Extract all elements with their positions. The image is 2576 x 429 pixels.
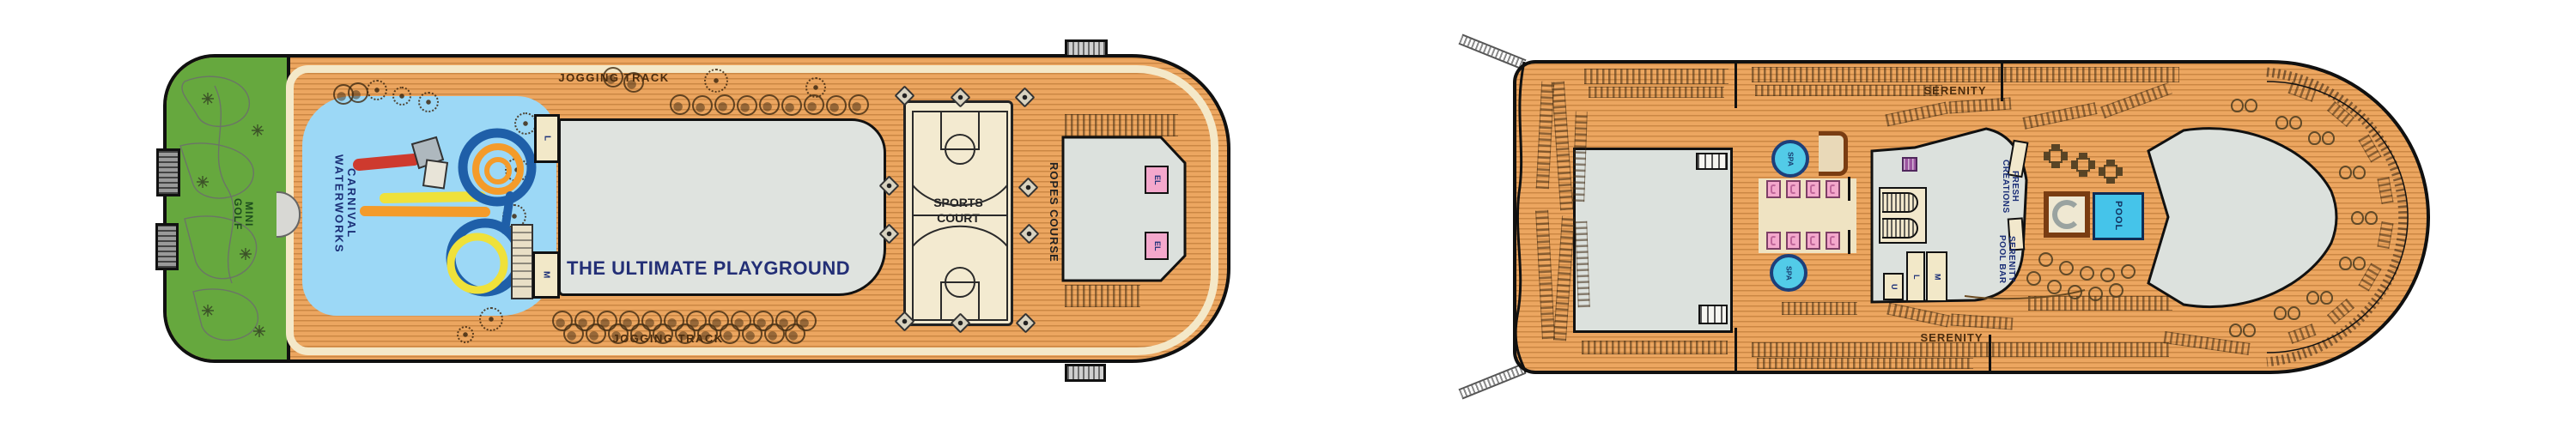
whirlpool-square bbox=[2044, 191, 2090, 238]
windbreak-1 bbox=[1735, 63, 1737, 108]
clamshell-pair-icon bbox=[2308, 131, 2336, 147]
bow-structure-bottom bbox=[155, 223, 179, 270]
round-table-icon bbox=[2080, 266, 2094, 281]
bar-counter bbox=[1819, 131, 1848, 176]
round-table-icon bbox=[2038, 252, 2053, 267]
mini-golf-label: MINIGOLF bbox=[220, 182, 254, 247]
round-table-icon bbox=[2047, 280, 2062, 294]
clamshell-pair-icon bbox=[2339, 166, 2366, 181]
vent-grille-bottom bbox=[1698, 305, 1728, 324]
cruise-deck-plans: SPORTS COURT L M EL EL JOGGING TRACK JOG… bbox=[0, 0, 2576, 429]
elevator-badge-2: EL bbox=[1145, 232, 1169, 260]
wall-stub-1 bbox=[1848, 177, 1850, 201]
clamshell-pair-icon bbox=[2229, 323, 2257, 339]
playground-title: THE ULTIMATE PLAYGROUND bbox=[567, 257, 850, 280]
waterworks-label: CARNIVALWATERWORKS bbox=[318, 116, 357, 292]
spa-lounger bbox=[1766, 180, 1781, 198]
stair-marker-upper-label: L bbox=[543, 136, 552, 142]
room-m: M bbox=[1926, 251, 1947, 302]
room-l: L bbox=[1906, 251, 1925, 302]
spa-lounger bbox=[1806, 232, 1820, 250]
vent-grille-top bbox=[1696, 153, 1728, 170]
stair-railing-top bbox=[1882, 192, 1918, 213]
round-table-icon bbox=[2109, 283, 2123, 298]
table-chairs-icon bbox=[2076, 158, 2090, 172]
funnel-structure bbox=[2148, 129, 2336, 307]
serenity-label-top: SERENITY bbox=[1917, 84, 1994, 97]
stair-marker-lower-label: M bbox=[542, 271, 551, 279]
serenity-label-bottom: SERENITY bbox=[1913, 331, 1990, 344]
spa-lounger bbox=[1786, 180, 1801, 198]
spa-forward-label: SPA bbox=[1786, 152, 1794, 166]
deck-break-line bbox=[1516, 62, 1526, 372]
elevator-badge-2-label: EL bbox=[1152, 241, 1161, 251]
table-chairs-icon bbox=[2049, 149, 2063, 163]
clamshell-pair-icon bbox=[2275, 116, 2303, 131]
water-slides-icon bbox=[359, 133, 532, 299]
windbreak-3 bbox=[2001, 63, 2003, 101]
table-chairs-icon bbox=[2104, 165, 2117, 178]
round-table-icon bbox=[2100, 268, 2115, 282]
windbreak-2 bbox=[1735, 328, 1737, 372]
spa-aft-label: SPA bbox=[1784, 266, 1792, 281]
spa-lounger bbox=[1826, 180, 1840, 198]
clamshell-pair-icon bbox=[2339, 257, 2366, 272]
round-table-icon bbox=[2026, 271, 2041, 286]
pool: POOL bbox=[2093, 192, 2144, 240]
room-m-label: M bbox=[1933, 274, 1941, 281]
spa-lounger bbox=[1826, 232, 1840, 250]
elevator-badge-1-label: EL bbox=[1152, 175, 1161, 185]
jogging-track-label-bottom: JOGGING TRACK bbox=[608, 332, 728, 345]
room-u-label: U bbox=[1889, 284, 1898, 290]
pool-label: POOL bbox=[2113, 201, 2123, 231]
spa-whirlpool-aft: SPA bbox=[1770, 254, 1807, 292]
room-l-label: L bbox=[1911, 275, 1920, 280]
deck-vector-art bbox=[0, 0, 2576, 429]
stern-platform-top bbox=[1065, 39, 1108, 57]
bow-structure-top bbox=[156, 148, 180, 196]
clamshell-pair-icon bbox=[2351, 211, 2379, 227]
round-table-icon bbox=[2088, 287, 2103, 301]
spa-lounger bbox=[1786, 232, 1801, 250]
round-table-icon bbox=[2121, 264, 2136, 279]
stair-railing-bottom bbox=[1882, 218, 1918, 239]
spa-lounger bbox=[1806, 180, 1820, 198]
towel-station bbox=[1902, 157, 1917, 172]
stair-marker-lower: M bbox=[532, 251, 560, 299]
clamshell-pair-icon bbox=[2274, 306, 2301, 322]
spa-whirlpool-forward: SPA bbox=[1771, 140, 1809, 178]
room-u: U bbox=[1883, 273, 1904, 300]
stair-marker-upper: L bbox=[534, 114, 560, 163]
round-table-icon bbox=[2059, 261, 2074, 275]
clamshell-pair-icon bbox=[2231, 99, 2258, 114]
wall-stub-2 bbox=[1848, 230, 1850, 254]
ropes-course-label: ROPES COURSE bbox=[1036, 144, 1060, 280]
elevator-badge-1: EL bbox=[1145, 166, 1169, 194]
clamshell-pair-icon bbox=[2306, 291, 2334, 306]
jogging-track-label-top: JOGGING TRACK bbox=[554, 71, 674, 84]
spa-lounger bbox=[1766, 232, 1781, 250]
round-table-icon bbox=[2068, 285, 2082, 299]
stern-platform-bottom bbox=[1065, 364, 1106, 382]
serenity-pool-bar-label: SERENITYPOOL BAR bbox=[1985, 211, 2016, 307]
